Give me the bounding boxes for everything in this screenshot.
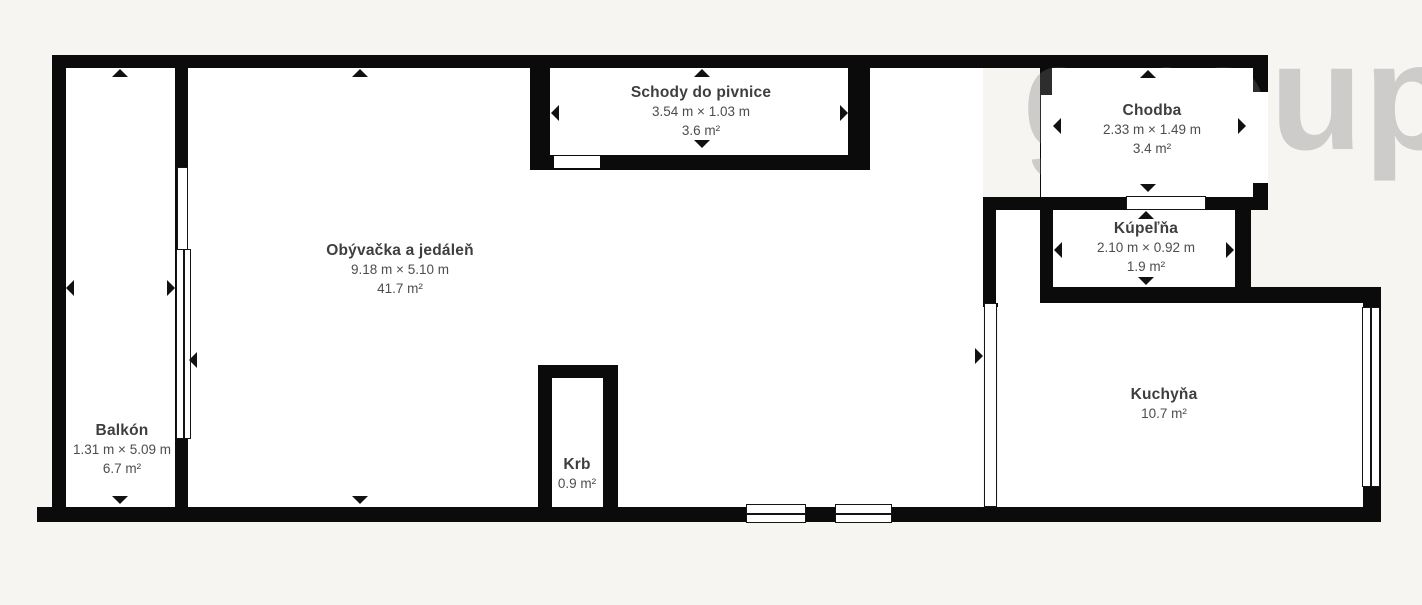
window-kitchen-right xyxy=(1362,307,1380,487)
arrow-right-icon xyxy=(840,105,848,121)
window-balcony-upper xyxy=(177,167,188,250)
arrow-left-icon xyxy=(551,105,559,121)
wall-bottom xyxy=(37,507,1381,522)
label-obyvacka: Obývačka a jedáleň 9.18 m × 5.10 m 41.7 … xyxy=(270,242,530,298)
arrow-down-icon xyxy=(352,496,368,504)
wall-schody-right xyxy=(848,55,870,170)
door-chodba-kupelna xyxy=(1126,196,1206,210)
wall-schody-left xyxy=(530,55,550,170)
room-dims: 1.31 m × 5.09 m xyxy=(42,440,202,459)
door-chodba-left xyxy=(1041,95,1052,197)
window-chodba-right xyxy=(1253,92,1268,183)
room-name: Chodba xyxy=(1052,102,1252,120)
room-area: 10.7 m² xyxy=(1064,404,1264,423)
room-name: Kuchyňa xyxy=(1064,386,1264,404)
label-chodba: Chodba 2.33 m × 1.49 m 3.4 m² xyxy=(1052,102,1252,158)
arrow-up-icon xyxy=(112,69,128,77)
label-krb: Krb 0.9 m² xyxy=(527,456,627,493)
label-kuchyna: Kuchyňa 10.7 m² xyxy=(1064,386,1264,423)
arrow-down-icon xyxy=(1138,277,1154,285)
door-schody xyxy=(554,156,600,168)
window-balcony-lower xyxy=(176,249,191,439)
room-area: 3.4 m² xyxy=(1052,139,1252,158)
label-balkon: Balkón 1.31 m × 5.09 m 6.7 m² xyxy=(42,422,202,478)
room-name: Schody do pivnice xyxy=(591,84,811,102)
room-area: 41.7 m² xyxy=(270,279,530,298)
window-pane-line xyxy=(836,513,891,515)
window-bottom-2 xyxy=(835,504,892,523)
room-dims: 2.10 m × 0.92 m xyxy=(1046,238,1246,257)
window-pane-line xyxy=(747,513,805,515)
window-bottom-1 xyxy=(746,504,806,523)
arrow-up-icon xyxy=(694,69,710,77)
room-name: Balkón xyxy=(42,422,202,440)
arrow-right-icon xyxy=(167,280,175,296)
room-dims: 2.33 m × 1.49 m xyxy=(1052,120,1252,139)
arrow-down-icon xyxy=(694,140,710,148)
room-area: 6.7 m² xyxy=(42,459,202,478)
label-schody: Schody do pivnice 3.54 m × 1.03 m 3.6 m² xyxy=(591,84,811,140)
room-name: Obývačka a jedáleň xyxy=(270,242,530,260)
room-kuchyna-niche xyxy=(996,210,1040,303)
room-dims: 3.54 m × 1.03 m xyxy=(591,102,811,121)
arrow-left-icon xyxy=(189,352,197,368)
arrow-right-icon xyxy=(975,348,983,364)
window-living-kitchen xyxy=(984,303,997,507)
wall-krb-top xyxy=(538,365,618,378)
room-area: 3.6 m² xyxy=(591,121,811,140)
room-name: Krb xyxy=(527,456,627,474)
room-area: 0.9 m² xyxy=(527,474,627,493)
arrow-up-icon xyxy=(352,69,368,77)
arrow-up-icon xyxy=(1138,211,1154,219)
arrow-down-icon xyxy=(1140,184,1156,192)
room-name: Kúpeľňa xyxy=(1046,220,1246,238)
room-area: 1.9 m² xyxy=(1046,257,1246,276)
label-kupelna: Kúpeľňa 2.10 m × 0.92 m 1.9 m² xyxy=(1046,220,1246,276)
arrow-up-icon xyxy=(1140,70,1156,78)
wall-kitchen-top xyxy=(1040,287,1381,303)
window-pane-line xyxy=(1370,308,1372,486)
window-pane-line xyxy=(183,250,185,438)
arrow-down-icon xyxy=(112,496,128,504)
floor-plan: group xyxy=(0,0,1422,605)
room-dims: 9.18 m × 5.10 m xyxy=(270,260,530,279)
arrow-left-icon xyxy=(66,280,74,296)
